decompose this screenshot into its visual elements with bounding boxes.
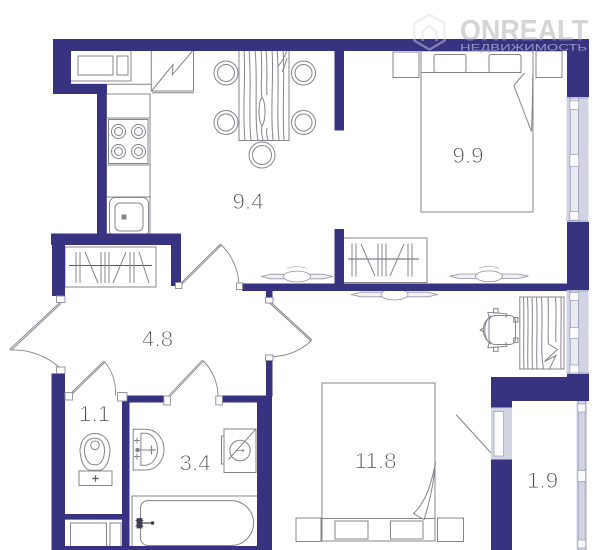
svg-text:9.9: 9.9 [452,143,483,168]
svg-text:1.9: 1.9 [527,468,558,493]
svg-text:4.8: 4.8 [142,327,173,352]
svg-text:11.8: 11.8 [354,449,396,474]
svg-text:9.4: 9.4 [232,189,263,214]
svg-text:1.1: 1.1 [79,402,110,427]
svg-text:НЕДВИЖИМОСТЬ: НЕДВИЖИМОСТЬ [460,43,587,54]
svg-text:3.4: 3.4 [179,451,210,476]
